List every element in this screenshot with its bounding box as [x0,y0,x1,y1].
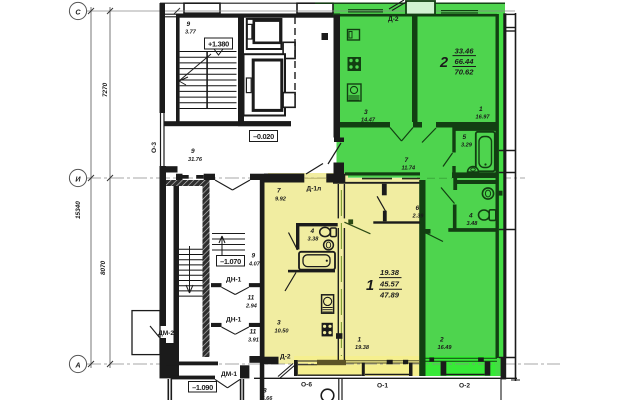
svg-text:3.48: 3.48 [467,221,479,227]
svg-text:9.92: 9.92 [275,197,287,203]
svg-text:6: 6 [416,205,420,212]
svg-text:3.91: 3.91 [248,338,259,344]
svg-text:1: 1 [358,337,362,344]
svg-text:ДМ-1: ДМ-1 [221,371,237,378]
svg-text:9: 9 [191,148,195,155]
svg-text:9: 9 [187,21,191,28]
svg-text:16.97: 16.97 [476,115,491,121]
svg-text:14.47: 14.47 [361,118,376,124]
svg-text:11: 11 [248,295,255,302]
svg-text:–0.020: –0.020 [253,132,274,141]
svg-text:70.62: 70.62 [454,68,474,77]
svg-text:2: 2 [439,55,448,71]
svg-text:45.57: 45.57 [379,280,400,289]
svg-text:3.77: 3.77 [185,30,197,36]
svg-text:О-2: О-2 [459,383,470,390]
svg-text:66.44: 66.44 [454,57,474,66]
svg-text:7: 7 [405,157,409,164]
svg-text:19.38: 19.38 [355,345,370,351]
svg-text:2.94: 2.94 [245,304,258,310]
svg-text:7270: 7270 [102,82,109,97]
svg-text:1: 1 [479,106,483,113]
svg-text:–1.090: –1.090 [192,383,213,392]
svg-text:2.39: 2.39 [412,214,425,220]
svg-text:ДМ-2: ДМ-2 [158,330,174,337]
svg-text:–1.070: –1.070 [220,257,241,266]
svg-text:9: 9 [252,253,256,260]
svg-text:4.07: 4.07 [248,262,261,268]
svg-text:4: 4 [310,228,315,235]
svg-text:Д-2: Д-2 [280,354,291,361]
svg-text:19.38: 19.38 [380,268,400,277]
svg-text:3.29: 3.29 [461,143,473,149]
svg-text:Д-2: Д-2 [388,16,399,23]
svg-text:47.89: 47.89 [379,290,400,299]
svg-text:16.49: 16.49 [438,345,453,351]
svg-text:10.50: 10.50 [275,329,290,335]
svg-text:15340: 15340 [75,201,82,219]
svg-text:О-3: О-3 [151,142,158,153]
svg-text:11: 11 [250,329,257,336]
svg-text:3.38: 3.38 [308,237,320,243]
svg-text:2: 2 [439,337,444,344]
svg-text:4: 4 [468,213,473,220]
svg-text:Д-1л: Д-1л [307,186,322,193]
svg-text:ДН-1: ДН-1 [226,316,242,323]
svg-text:33.46: 33.46 [454,47,474,56]
svg-text:1: 1 [366,278,374,294]
svg-text:5: 5 [463,134,467,141]
svg-text:А: А [74,360,80,369]
svg-text:11.74: 11.74 [402,166,416,172]
svg-text:7: 7 [277,188,281,195]
svg-text:И: И [75,174,81,183]
svg-text:О-1: О-1 [377,383,388,390]
svg-text:8: 8 [263,388,267,395]
svg-text:8070: 8070 [100,260,107,275]
svg-text:31.76: 31.76 [188,157,203,163]
svg-text:О-6: О-6 [301,382,312,389]
svg-text:3: 3 [277,320,281,327]
svg-text:6.66: 6.66 [262,396,274,400]
svg-text:С: С [75,7,81,16]
svg-text:ДН-1: ДН-1 [226,277,242,284]
svg-text:+1.380: +1.380 [208,40,229,49]
svg-text:3: 3 [364,109,368,116]
